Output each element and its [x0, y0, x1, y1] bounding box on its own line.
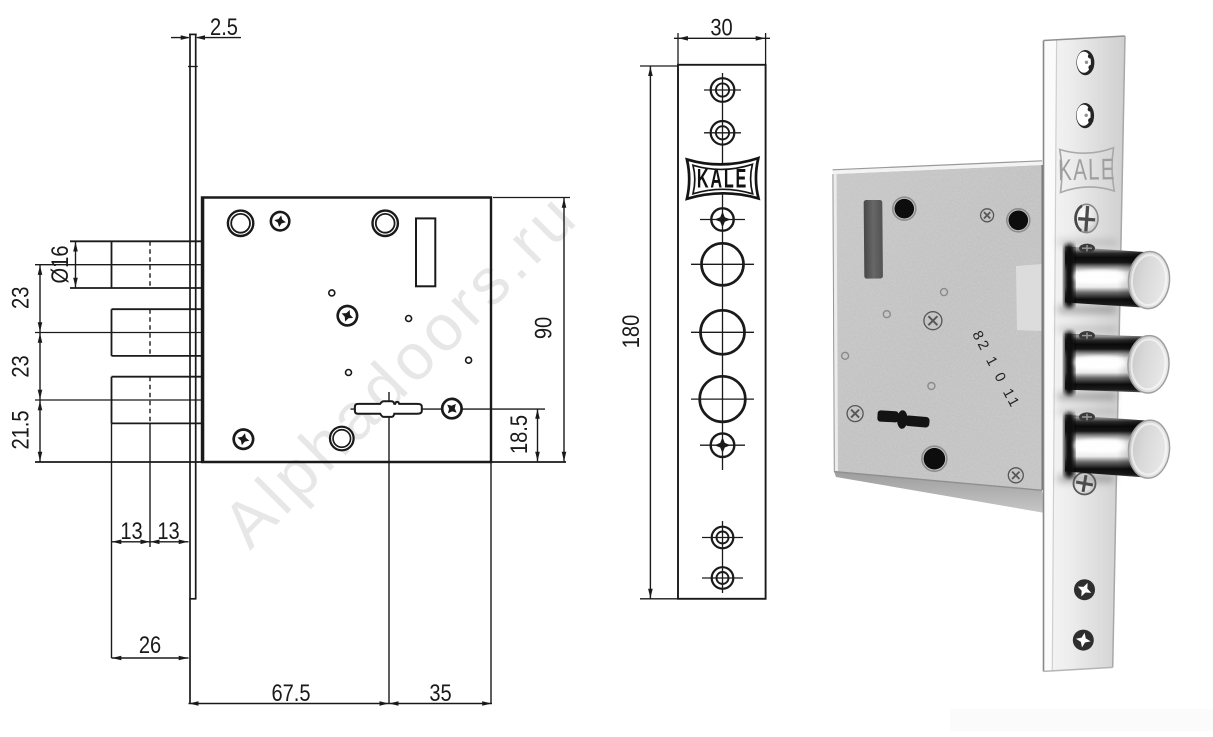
svg-text:90: 90: [530, 317, 557, 339]
svg-text:Ø16: Ø16: [46, 246, 73, 284]
svg-text:13: 13: [120, 517, 142, 544]
svg-text:18.5: 18.5: [505, 415, 532, 454]
svg-text:23: 23: [7, 355, 34, 377]
svg-text:KALE: KALE: [697, 163, 748, 193]
svg-text:KALE: KALE: [1058, 153, 1116, 187]
svg-text:26: 26: [139, 631, 161, 658]
svg-text:35: 35: [429, 679, 451, 706]
svg-text:67.5: 67.5: [271, 679, 310, 706]
svg-text:180: 180: [617, 315, 644, 349]
svg-text:13: 13: [157, 517, 179, 544]
svg-text:21.5: 21.5: [7, 410, 34, 449]
svg-text:23: 23: [7, 287, 34, 309]
svg-text:2.5: 2.5: [210, 13, 238, 40]
svg-text:30: 30: [710, 13, 732, 40]
